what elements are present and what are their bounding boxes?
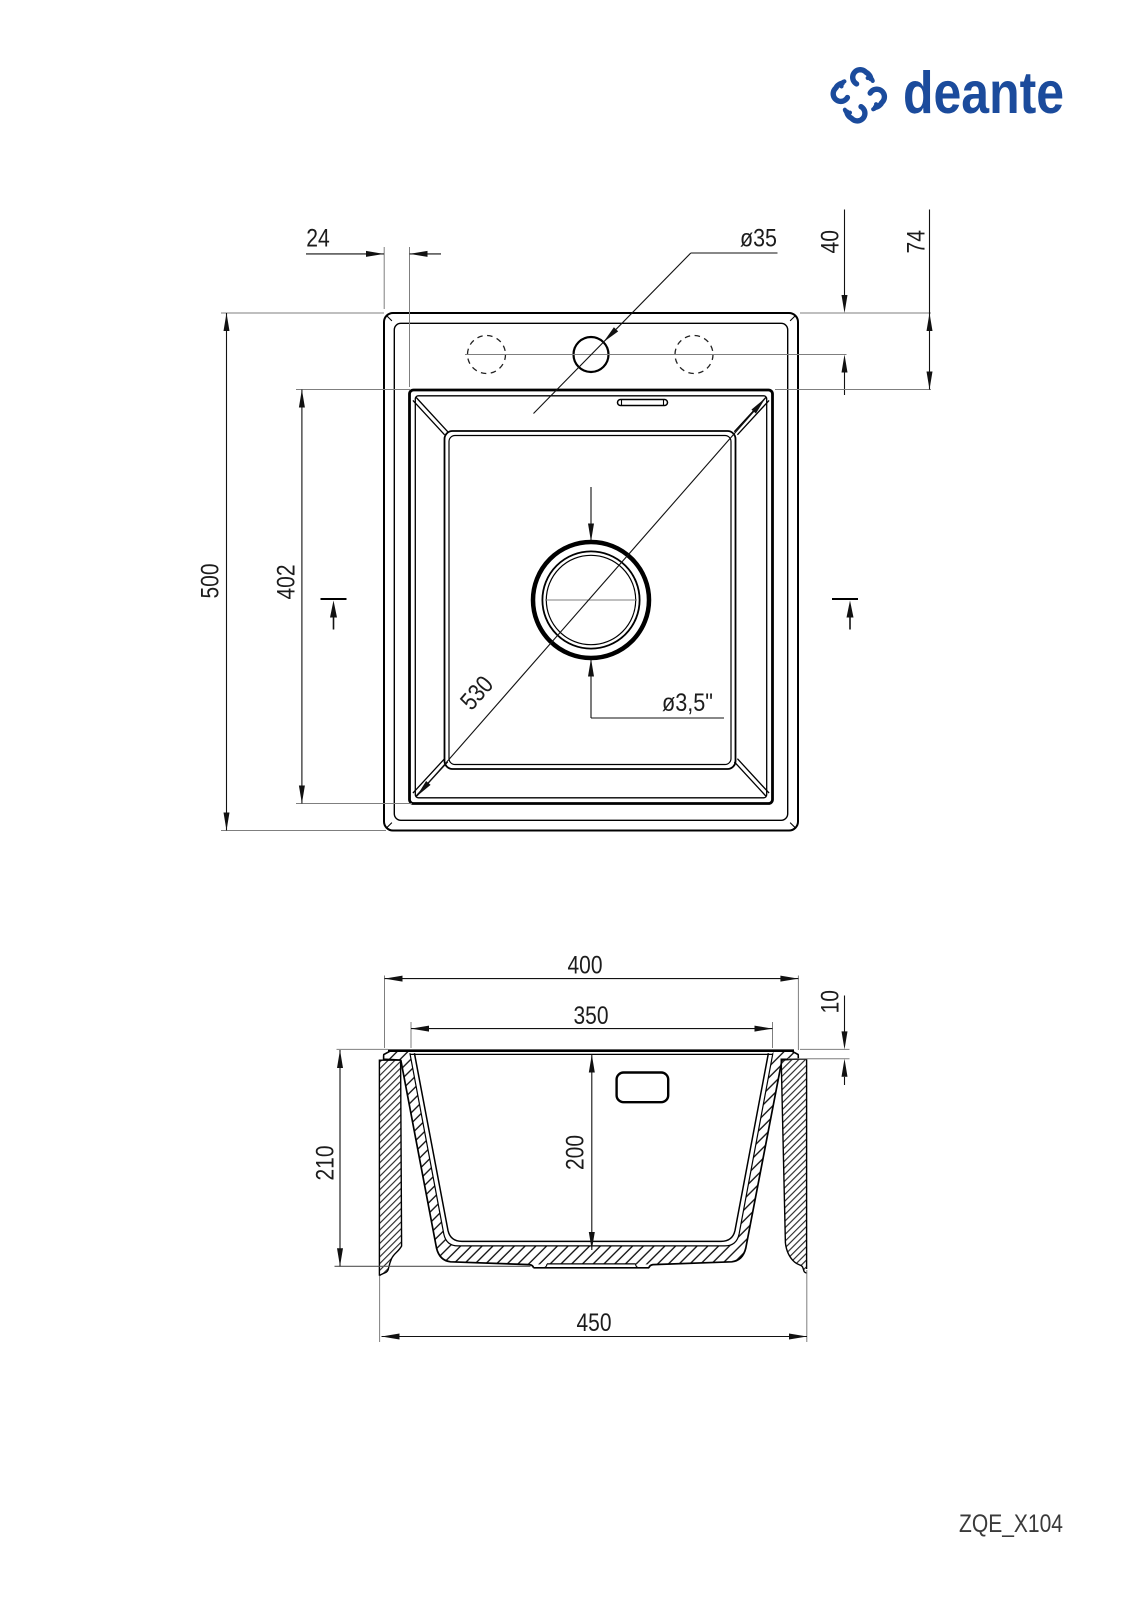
svg-text:ø3,5": ø3,5" [662, 689, 713, 717]
svg-text:500: 500 [197, 564, 225, 599]
svg-text:400: 400 [568, 952, 603, 980]
svg-text:450: 450 [577, 1309, 612, 1337]
svg-text:210: 210 [312, 1146, 340, 1181]
svg-text:ø35: ø35 [740, 225, 777, 253]
svg-text:deante: deante [903, 60, 1064, 126]
svg-text:24: 24 [306, 225, 330, 253]
svg-text:74: 74 [903, 230, 931, 254]
svg-text:350: 350 [574, 1002, 609, 1030]
svg-text:402: 402 [273, 565, 301, 600]
svg-text:10: 10 [817, 990, 845, 1014]
svg-text:40: 40 [817, 230, 845, 254]
svg-text:ZQE_X104: ZQE_X104 [959, 1510, 1063, 1538]
svg-text:200: 200 [562, 1135, 590, 1170]
